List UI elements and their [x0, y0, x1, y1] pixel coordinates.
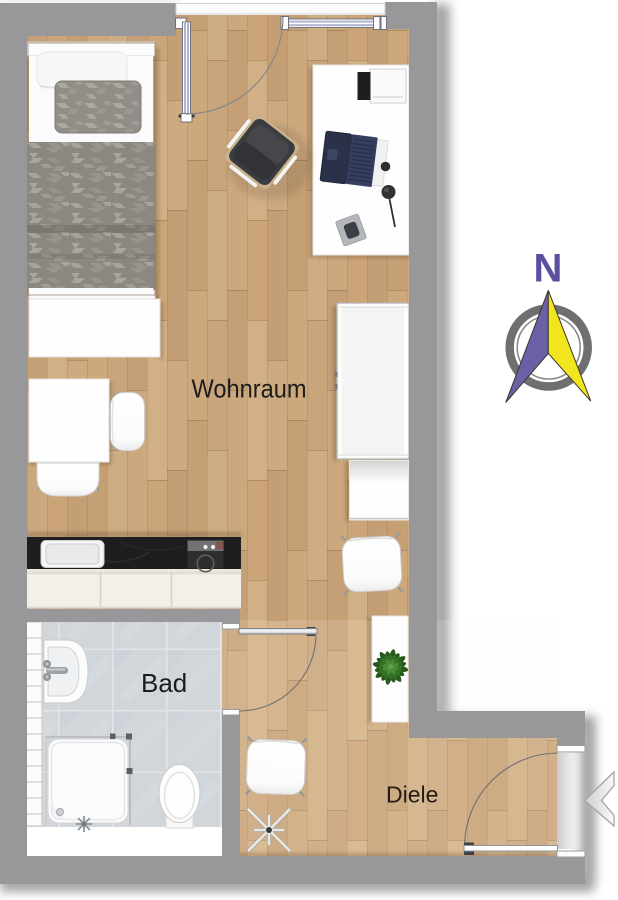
svg-text:Diele: Diele: [386, 782, 438, 808]
svg-text:N: N: [534, 247, 563, 291]
svg-text:Wohnraum: Wohnraum: [192, 374, 307, 404]
svg-text:Bad: Bad: [141, 668, 187, 698]
